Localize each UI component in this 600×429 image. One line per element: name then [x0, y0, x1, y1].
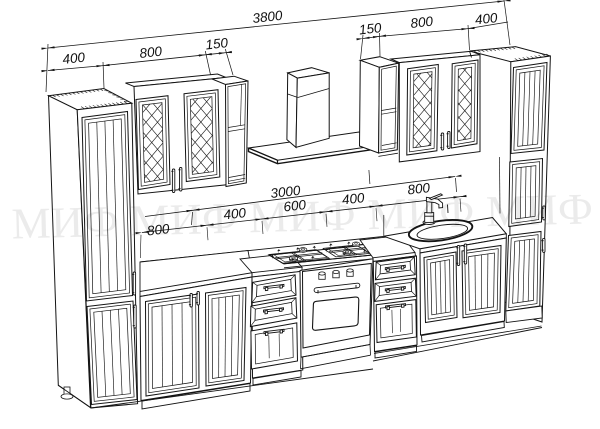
svg-text:400: 400 — [474, 10, 499, 27]
svg-text:400: 400 — [62, 50, 87, 67]
svg-text:150: 150 — [358, 20, 383, 37]
svg-text:800: 800 — [410, 14, 435, 31]
svg-text:800: 800 — [139, 44, 164, 61]
